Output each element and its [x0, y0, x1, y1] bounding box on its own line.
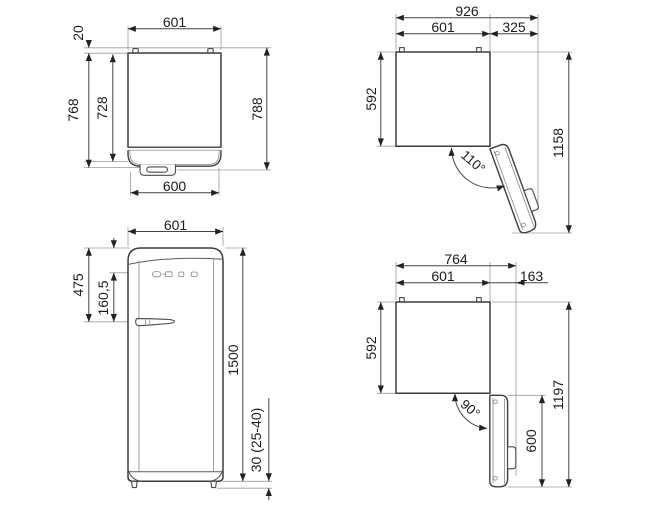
foot-right [211, 481, 217, 487]
dim-front-width-601: 601 [164, 218, 187, 232]
foot-left [132, 481, 138, 487]
top-view-open-110 [377, 14, 572, 234]
fridge-top-outline [128, 49, 221, 176]
dim-reach-1197: 1197 [551, 379, 565, 409]
dim-top-to-handle: 475 [71, 273, 85, 296]
fridge-top-outline-110 [396, 48, 545, 235]
refrigerator-dimension-diagram: 601 20 768 728 788 600 926 601 325 592 1… [0, 0, 650, 510]
dim-depth-592-90: 592 [364, 336, 378, 359]
dim-depth-inner: 728 [95, 96, 109, 119]
dim-hinge-gap: 20 [71, 25, 85, 41]
fridge-front-outline [128, 248, 223, 488]
top-view-open-90 [377, 262, 572, 487]
door-top-profile [128, 150, 221, 166]
dim-reach-1158: 1158 [551, 127, 565, 157]
dim-feet-height: 30 (25-40) [249, 408, 263, 473]
top-view-closed [84, 26, 271, 196]
front-view [84, 227, 272, 500]
dim-door-width-600: 600 [524, 429, 538, 452]
door-open-90 [490, 395, 516, 487]
dim-body-width-110: 601 [431, 20, 454, 34]
dim-door-swing-110: 325 [502, 20, 525, 34]
dim-total-width-90: 764 [444, 252, 467, 266]
fridge-top-outline-90 [396, 298, 516, 487]
dim-height-1500: 1500 [226, 344, 240, 375]
dim-panel-to-handle: 160,5 [96, 280, 110, 315]
dim-depth-total: 788 [250, 97, 264, 120]
dim-top-width: 601 [163, 15, 186, 29]
dim-front-width: 600 [163, 179, 186, 193]
dim-depth-592-110: 592 [364, 87, 378, 110]
dim-door-swing-90: 163 [520, 269, 543, 283]
dim-total-width-110: 926 [455, 4, 478, 18]
dim-body-width-90: 601 [431, 269, 454, 283]
dim-depth-body: 768 [66, 98, 80, 121]
door-handle [508, 447, 516, 469]
drawing-canvas [0, 0, 650, 510]
